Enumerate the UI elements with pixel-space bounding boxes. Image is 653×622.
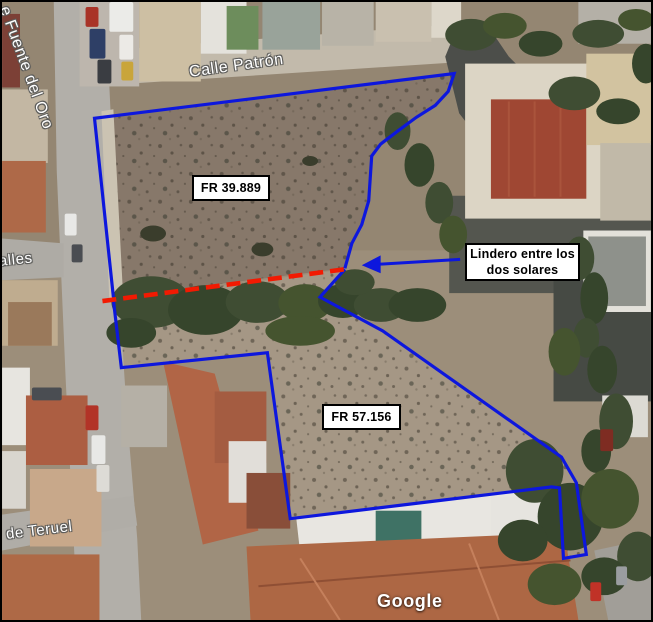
parcel-lower-label: FR 57.156: [322, 404, 401, 430]
street-label-alles: alles: [0, 249, 33, 269]
map-screenshot: e Fuente del Oro Calle Patrón alles de T…: [0, 0, 653, 622]
boundary-note-label: Lindero entre los dos solares: [465, 243, 580, 281]
parcel-upper-label: FR 39.889: [192, 175, 270, 201]
boundary-note-line1: Lindero entre los: [470, 246, 575, 263]
google-logo[interactable]: Google: [377, 591, 443, 612]
boundary-note-line2: dos solares: [487, 262, 559, 279]
satellite-imagery[interactable]: [2, 2, 651, 620]
